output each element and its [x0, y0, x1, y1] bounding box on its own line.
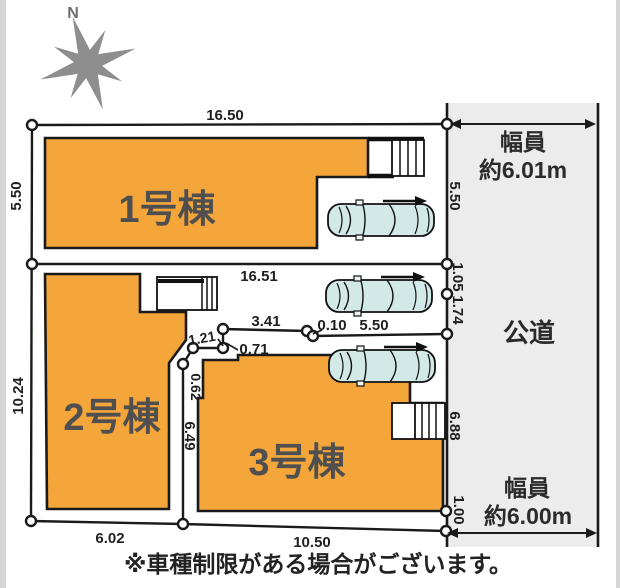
car-icon [326, 272, 432, 316]
dim-jag-down: 0.62 [188, 373, 204, 400]
vertex-marker [178, 519, 188, 529]
vertex-marker [27, 259, 37, 269]
road-width-top-line1: 幅員 [500, 129, 546, 155]
stairs-icon [392, 403, 445, 439]
lot-south-line [31, 521, 446, 531]
right-edge-strip [616, 0, 620, 588]
dim-jag-across: 1.21 [187, 328, 217, 349]
compass-star-icon [25, 1, 150, 125]
lot-west-line [31, 125, 32, 521]
dim-mid-b: 0.10 [317, 317, 346, 334]
building-2-label: 2号棟 [63, 397, 161, 439]
vertex-marker [218, 324, 228, 334]
dim-road-a: 5.50 [446, 181, 463, 210]
vertex-marker [441, 506, 451, 516]
dim-road-e: 1.00 [450, 495, 467, 524]
dim-left-upper: 5.50 [8, 181, 25, 210]
dim-road-b: 1.05 [449, 262, 466, 291]
dim-lot-side: 6.49 [181, 421, 198, 450]
vertex-marker [441, 526, 451, 536]
building-3-entrance [392, 403, 445, 439]
vertex-marker [26, 516, 36, 526]
road-name-label: 公道 [503, 318, 555, 348]
dim-mid-a: 3.41 [251, 313, 280, 330]
car-icon [328, 196, 434, 240]
note-text: ※車種制限がある場合がございます。 [124, 551, 512, 577]
building-1-entrance [368, 139, 424, 176]
dim-jag-up: 0.71 [239, 341, 268, 358]
vertex-marker [218, 343, 228, 353]
dim-top-width: 16.50 [206, 107, 244, 124]
dim-left-lower: 10.24 [10, 377, 27, 415]
car-icon [329, 342, 435, 386]
dim-mid-c: 5.50 [359, 317, 388, 334]
lot-north-line [32, 124, 447, 125]
dim-bottom-right: 10.50 [293, 534, 331, 551]
road-width-top-line2: 約6.01m [479, 157, 567, 183]
building-2-entrance [157, 277, 217, 310]
north-label: N [67, 5, 79, 22]
vertex-marker [178, 359, 188, 369]
building-3-label: 3号棟 [248, 442, 346, 484]
dim-road-c: 1.74 [449, 295, 466, 325]
compass-rose: N [25, 1, 150, 125]
building-1-label: 1号棟 [118, 189, 216, 231]
left-edge-strip [0, 0, 6, 588]
road-width-bottom-line2: 約6.00m [484, 503, 572, 529]
vertex-marker [27, 120, 37, 130]
vertex-marker [442, 329, 452, 339]
site-plan-svg: 1号棟 2号棟 3号棟 16.50 16.51 5.50 10.24 6.02 … [0, 0, 620, 588]
dim-bottom-left: 6.02 [95, 530, 124, 547]
road-width-bottom-line1: 幅員 [504, 475, 550, 501]
site-plan: 1号棟 2号棟 3号棟 16.50 16.51 5.50 10.24 6.02 … [0, 0, 620, 588]
dim-divider-width: 16.51 [240, 268, 278, 285]
dim-road-d: 6.88 [446, 411, 463, 440]
